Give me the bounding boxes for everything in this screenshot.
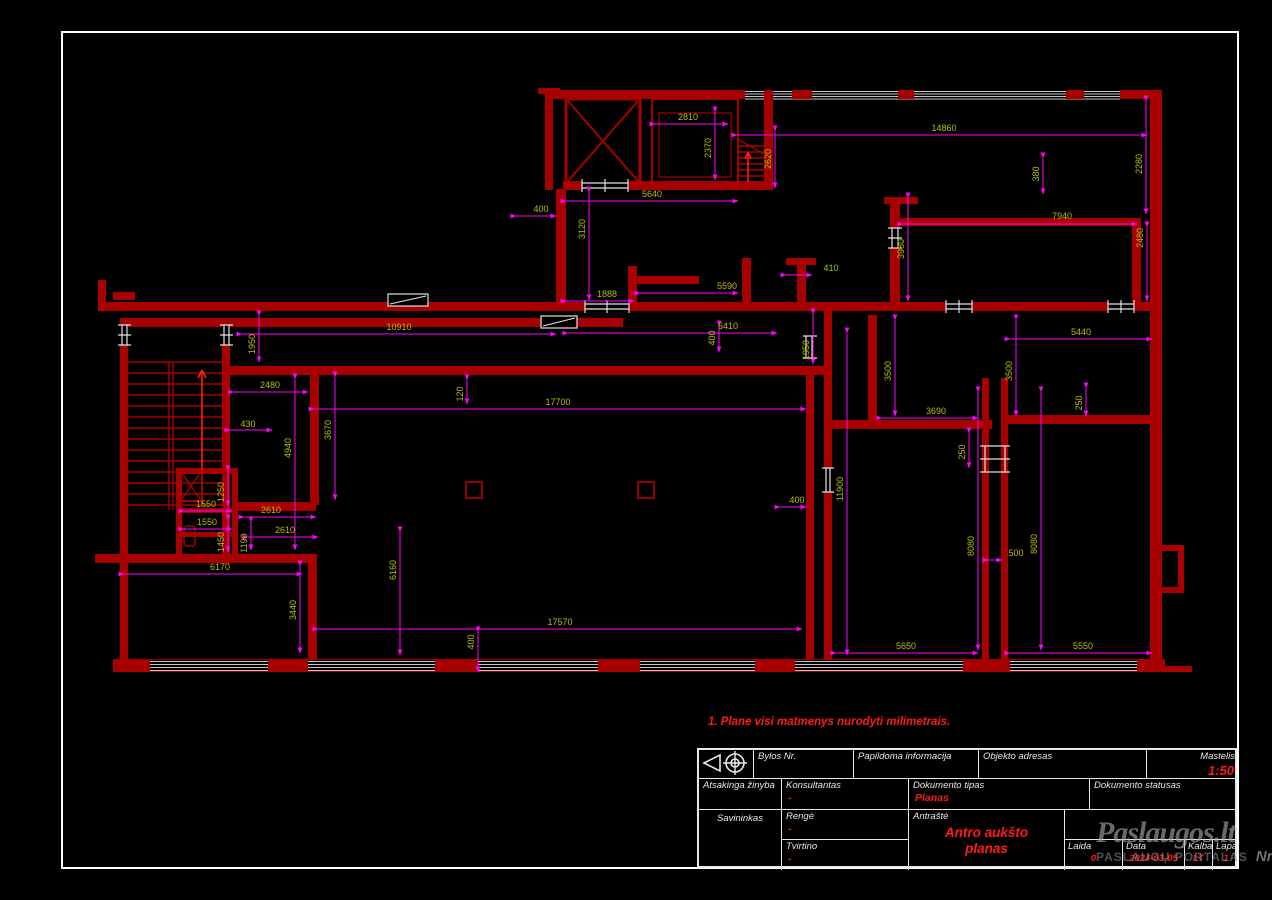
date-label: Data bbox=[1123, 840, 1184, 853]
plan-note: 1. Plane visi matmenys nurodyti milimetr… bbox=[708, 716, 950, 728]
dimension-label: 6160 bbox=[388, 560, 398, 580]
responsible-dept-cell: Atsakinga žinyba bbox=[699, 779, 782, 810]
dimension-label: 7940 bbox=[1052, 211, 1072, 221]
dimension-label: 380 bbox=[1031, 166, 1041, 181]
dimension-label: 5650 bbox=[896, 641, 916, 651]
dimension-label: 1550 bbox=[196, 499, 216, 509]
first-angle-projection-icon bbox=[699, 750, 752, 777]
document-type-cell: Dokumento tipas Planas bbox=[909, 779, 1090, 810]
dimension-label: 400 bbox=[707, 330, 717, 345]
dimension-label: 3500 bbox=[883, 361, 893, 381]
page-value: 1 bbox=[1213, 853, 1239, 864]
dimension-label: 2370 bbox=[703, 138, 713, 158]
projection-symbol-cell bbox=[699, 750, 754, 779]
stairs-top bbox=[739, 140, 764, 182]
dimension-label: 14860 bbox=[931, 123, 956, 133]
document-type-value: Planas bbox=[909, 792, 1089, 804]
elevator-shaft-top bbox=[566, 99, 640, 183]
responsible-dept-label: Atsakinga žinyba bbox=[699, 779, 781, 792]
object-address-cell: Objekto adresas bbox=[979, 750, 1147, 779]
drawing-title-label: Antraštė bbox=[909, 810, 1064, 823]
owner-label: Savininkas bbox=[699, 810, 781, 825]
cad-sheet: 2810564040014860794041055901888641010910… bbox=[0, 0, 1272, 900]
dimension-label: 400 bbox=[789, 495, 804, 505]
dimension-label: 400 bbox=[466, 634, 476, 649]
elevator-shaft-small bbox=[180, 471, 202, 501]
dimension-label: 2620 bbox=[763, 149, 773, 169]
edition-label: Laida bbox=[1065, 840, 1122, 853]
revision-spacer-cell bbox=[1065, 810, 1239, 840]
date-cell: Data 2024-03-05 bbox=[1123, 840, 1185, 870]
dimension-label: 1450 bbox=[216, 532, 226, 552]
file-number-label: Bylos Nr. bbox=[754, 750, 853, 763]
language-value: LT bbox=[1185, 853, 1212, 864]
edition-cell: Laida 0 bbox=[1065, 840, 1123, 870]
dimension-label: 1950 bbox=[247, 334, 257, 354]
dimension-label: 120 bbox=[455, 386, 465, 401]
dimension-label: 5550 bbox=[1073, 641, 1093, 651]
prepared-by-label: Rengė bbox=[782, 810, 908, 823]
consultant-cell: Konsultantas - bbox=[782, 779, 909, 810]
dimension-label: 2480 bbox=[1135, 228, 1145, 248]
dimension-label: 500 bbox=[1008, 548, 1023, 558]
title-block: Bylos Nr. Papildoma informacija Objekto … bbox=[697, 748, 1237, 868]
dimension-label: 3440 bbox=[288, 600, 298, 620]
dimension-label: 3690 bbox=[926, 406, 946, 416]
dimension-label: 430 bbox=[240, 419, 255, 429]
language-cell: Kalba LT bbox=[1185, 840, 1213, 870]
dimension-label: 1250 bbox=[216, 482, 226, 502]
dimension-label: 3670 bbox=[323, 420, 333, 440]
page-label: Lapas bbox=[1213, 840, 1239, 853]
document-status-cell: Dokumento statusas bbox=[1090, 779, 1239, 810]
dimension-label: 17570 bbox=[547, 617, 572, 627]
dimension-label: 4940 bbox=[283, 438, 293, 458]
dimension-label: 3120 bbox=[577, 219, 587, 239]
dimension-label: 250 bbox=[957, 444, 967, 459]
document-type-label: Dokumento tipas bbox=[909, 779, 1089, 792]
file-number-cell: Bylos Nr. bbox=[754, 750, 854, 779]
page-cell: Lapas 1 bbox=[1213, 840, 1239, 870]
owner-cell: Savininkas bbox=[699, 810, 782, 870]
dimension-label: 6410 bbox=[718, 321, 738, 331]
scale-value: 1:50 bbox=[1147, 763, 1239, 778]
approved-by-cell: Tvirtino - bbox=[782, 840, 909, 870]
approved-by-label: Tvirtino bbox=[782, 840, 908, 853]
dimension-label: 250 bbox=[1074, 395, 1084, 410]
dimension-label: 2280 bbox=[1134, 154, 1144, 174]
stairs-tower bbox=[128, 362, 222, 510]
consultant-value: - bbox=[782, 792, 908, 804]
dimension-label: 5640 bbox=[642, 189, 662, 199]
scale-label: Mastelis bbox=[1147, 750, 1239, 763]
additional-info-label: Papildoma informacija bbox=[854, 750, 978, 763]
prepared-by-value: - bbox=[782, 823, 908, 835]
dimension-label: 1950 bbox=[801, 340, 811, 360]
dimension-label: 10910 bbox=[386, 322, 411, 332]
document-status-label: Dokumento statusas bbox=[1090, 779, 1239, 792]
dimension-label: 5590 bbox=[717, 281, 737, 291]
drawing-title-value: Antro aukšto planas bbox=[927, 825, 1047, 856]
drawing-title-cell: Antraštė Antro aukšto planas bbox=[909, 810, 1065, 870]
sheet-frame bbox=[62, 32, 1238, 868]
dimension-label: 1190 bbox=[239, 533, 249, 552]
dimension-label: 17700 bbox=[545, 397, 570, 407]
dimension-label: 410 bbox=[823, 263, 838, 273]
object-address-label: Objekto adresas bbox=[979, 750, 1146, 763]
additional-info-cell: Papildoma informacija bbox=[854, 750, 979, 779]
dimension-label: 6170 bbox=[210, 562, 230, 572]
approved-by-value: - bbox=[782, 853, 908, 865]
consultant-label: Konsultantas bbox=[782, 779, 908, 792]
language-label: Kalba bbox=[1185, 840, 1212, 853]
dimension-label: 1888 bbox=[597, 289, 617, 299]
dimension-label: 400 bbox=[533, 204, 548, 214]
dimension-label: 8080 bbox=[1029, 534, 1039, 554]
edition-value: 0 bbox=[1065, 853, 1122, 864]
dimension-label: 5440 bbox=[1071, 327, 1091, 337]
dimension-label: 2610 bbox=[275, 525, 295, 535]
dimension-label: 2610 bbox=[261, 505, 281, 515]
dimension-label: 3980 bbox=[896, 239, 906, 259]
dimension-label: 8080 bbox=[966, 536, 976, 556]
prepared-by-cell: Rengė - bbox=[782, 810, 909, 840]
date-value: 2024-03-05 bbox=[1123, 853, 1184, 864]
dimension-label: 2480 bbox=[260, 380, 280, 390]
scale-cell: Mastelis 1:50 bbox=[1147, 750, 1239, 779]
dimension-label: 1550 bbox=[197, 517, 217, 527]
window-glazing bbox=[745, 92, 1160, 269]
columns bbox=[466, 482, 654, 498]
dimension-label: 11900 bbox=[835, 477, 845, 501]
dimension-label: 2810 bbox=[678, 112, 698, 122]
dimension-label: 3500 bbox=[1004, 361, 1014, 381]
